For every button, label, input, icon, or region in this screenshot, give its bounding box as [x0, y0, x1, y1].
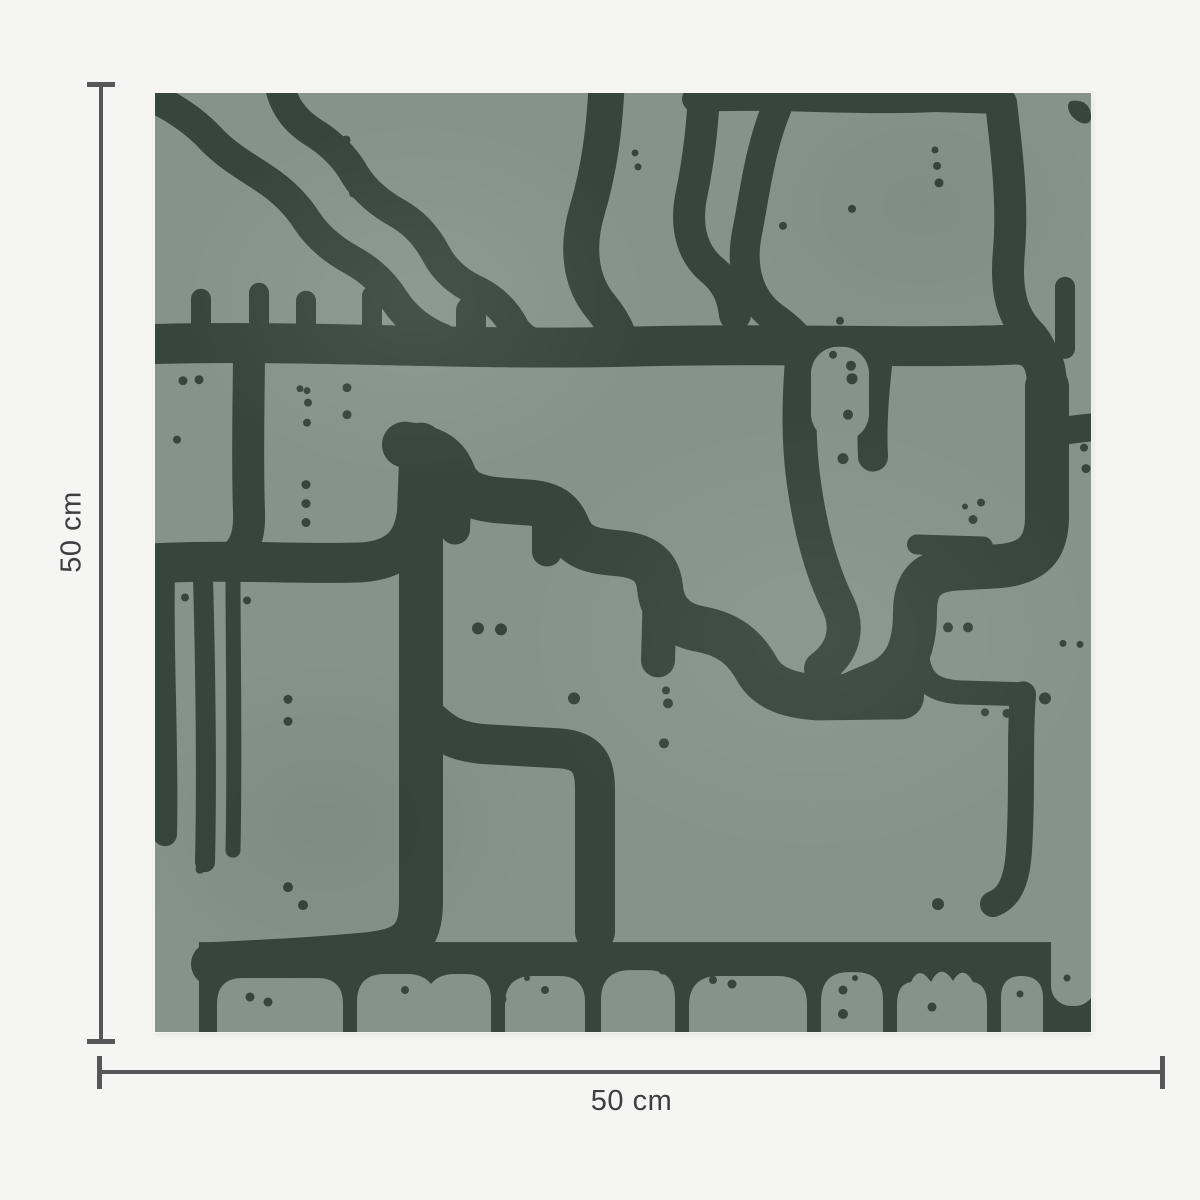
width-dimension-cap-right [1160, 1056, 1165, 1089]
wallpaper-swatch [155, 93, 1091, 1032]
wallpaper-pattern-graphic [155, 93, 1091, 1032]
width-dimension-cap-left [97, 1056, 102, 1089]
height-dimension-cap-bottom [87, 1039, 115, 1044]
width-dimension-label: 50 cm [99, 1087, 1164, 1116]
height-dimension-label: 50 cm [58, 491, 87, 572]
width-dimension-line [99, 1070, 1164, 1074]
height-dimension-cap-top [87, 82, 115, 87]
height-dimension-line [99, 84, 103, 1042]
